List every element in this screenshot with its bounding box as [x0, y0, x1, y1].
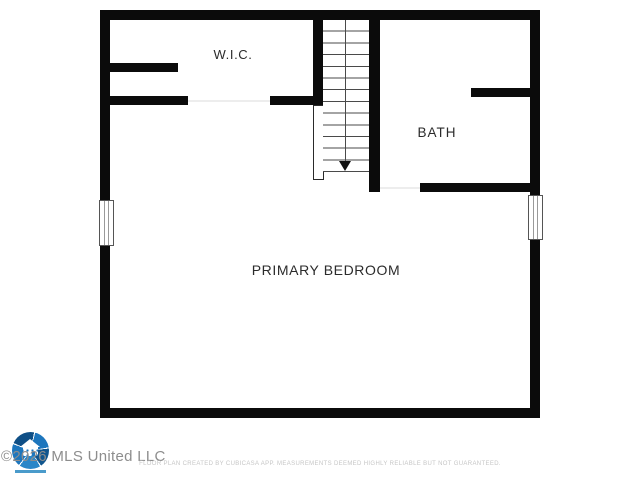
window-pane-line	[533, 196, 534, 239]
window-pane-line	[537, 196, 538, 239]
wall-bath-bottom	[420, 183, 540, 192]
wall-stairwell-right	[369, 10, 380, 192]
disclaimer-text: FLOOR PLAN CREATED BY CUBICASA APP. MEAS…	[0, 461, 640, 467]
room-label-wic: W.I.C.	[188, 47, 278, 62]
room-label-bath: BATH	[394, 125, 480, 140]
wall-wic-bottom-left	[100, 96, 188, 105]
wall-bath-stub	[471, 88, 540, 97]
wall-wic-closet-stub	[100, 63, 178, 72]
window-pane-line	[108, 201, 109, 245]
doorway-wic	[188, 100, 270, 102]
window-pane-line	[104, 201, 105, 245]
doorway-bath	[380, 187, 420, 189]
wall-outer-bottom	[100, 408, 540, 418]
wall-stairwell-left	[313, 10, 323, 105]
logo-subtext	[15, 470, 46, 473]
floor-plan: W.I.C. BATH PRIMARY BEDROOM	[0, 0, 640, 480]
window-symbol-left	[99, 200, 114, 246]
house-roof	[20, 439, 40, 447]
window-symbol-right	[528, 195, 543, 240]
stairs-down-arrow-icon	[339, 161, 351, 171]
staircase	[323, 20, 369, 172]
room-label-primary-bedroom: PRIMARY BEDROOM	[246, 262, 406, 278]
stair-direction-line	[345, 20, 346, 161]
